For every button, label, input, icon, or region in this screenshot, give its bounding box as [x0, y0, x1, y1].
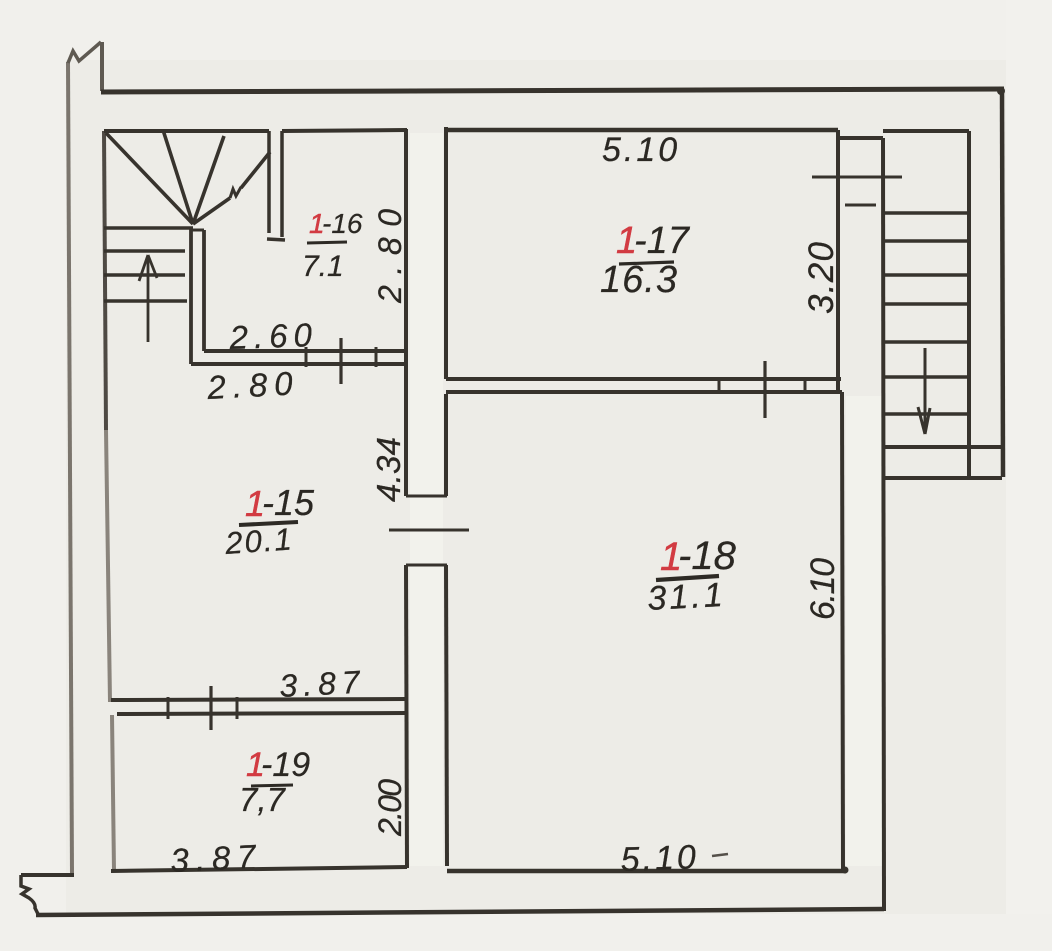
- svg-text:-15: -15: [262, 482, 315, 523]
- svg-text:31.1: 31.1: [646, 576, 726, 618]
- svg-text:2.80: 2.80: [205, 364, 300, 406]
- svg-text:3.87: 3.87: [169, 837, 263, 879]
- svg-text:-16: -16: [322, 208, 363, 239]
- svg-text:7.1: 7.1: [302, 250, 344, 283]
- svg-text:16.3: 16.3: [600, 259, 678, 301]
- svg-text:6.10: 6.10: [804, 558, 842, 620]
- svg-text:5.10: 5.10: [602, 131, 680, 169]
- svg-text:3.20: 3.20: [802, 241, 841, 314]
- svg-text:-17: -17: [634, 220, 691, 262]
- svg-text:-19: -19: [261, 746, 310, 784]
- svg-text:2.00: 2.00: [372, 779, 408, 837]
- svg-text:7,7: 7,7: [239, 781, 287, 818]
- svg-text:2.60: 2.60: [228, 316, 318, 356]
- svg-text:-18: -18: [678, 534, 737, 578]
- svg-text:20.1: 20.1: [223, 521, 295, 561]
- svg-text:4.34: 4.34: [370, 437, 407, 502]
- svg-text:5.10: 5.10: [620, 838, 699, 879]
- svg-text:3.87: 3.87: [278, 664, 366, 704]
